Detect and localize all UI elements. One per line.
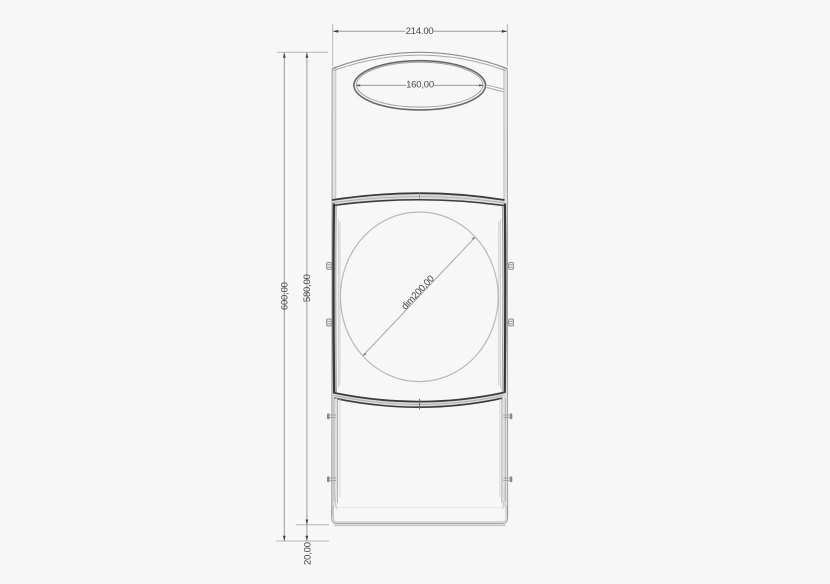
svg-text:580,00: 580,00 (302, 274, 313, 302)
svg-text:600,00: 600,00 (279, 282, 290, 310)
svg-text:20,00: 20,00 (302, 542, 313, 565)
svg-text:160,00: 160,00 (406, 79, 434, 90)
svg-text:214.00: 214.00 (406, 26, 434, 37)
